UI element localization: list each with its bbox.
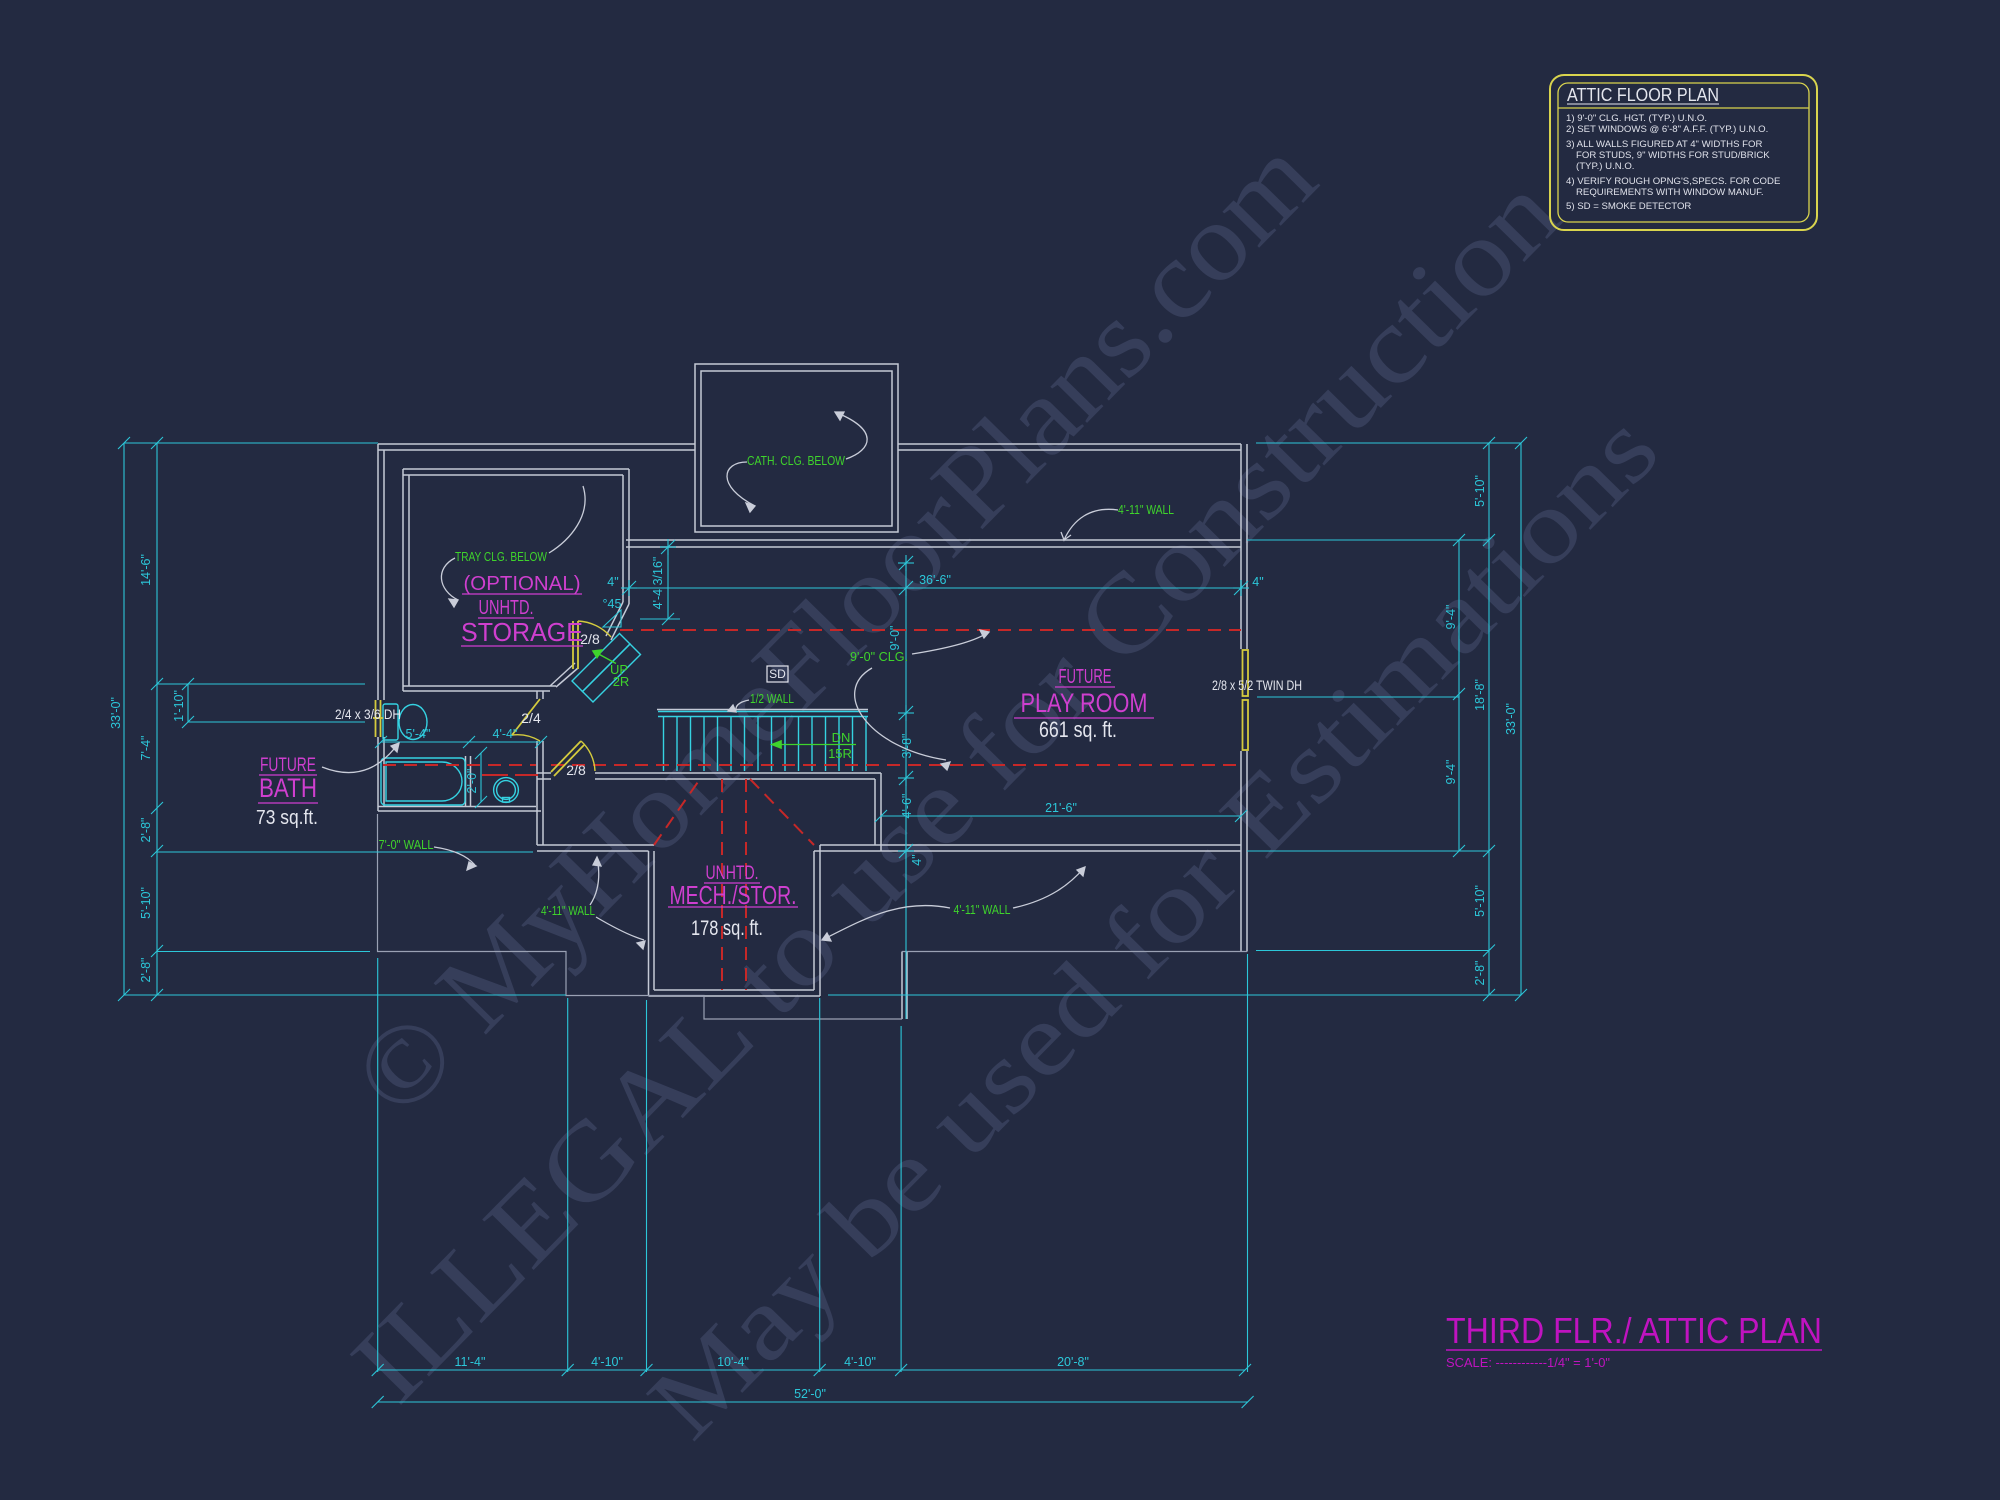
svg-text:20'-8": 20'-8" bbox=[1057, 1355, 1089, 1369]
svg-text:4'-4 3/16": 4'-4 3/16" bbox=[651, 557, 665, 610]
svg-text:21'-6": 21'-6" bbox=[1045, 801, 1077, 815]
svg-text:UNHTD.: UNHTD. bbox=[479, 597, 534, 619]
svg-text:5'-10": 5'-10" bbox=[1473, 885, 1487, 917]
svg-text:4'-4": 4'-4" bbox=[493, 727, 518, 741]
svg-text:5'-10": 5'-10" bbox=[1473, 475, 1487, 507]
svg-text:1/2 WALL: 1/2 WALL bbox=[750, 691, 794, 706]
svg-text:33'-0": 33'-0" bbox=[109, 697, 123, 729]
svg-text:REQUIREMENTS WITH WINDOW MANUF: REQUIREMENTS WITH WINDOW MANUF. bbox=[1576, 187, 1764, 198]
svg-text:4'-6": 4'-6" bbox=[900, 794, 914, 819]
svg-text:2'-8": 2'-8" bbox=[139, 818, 153, 843]
svg-text:33'-0": 33'-0" bbox=[1504, 703, 1518, 735]
svg-text:4'-10": 4'-10" bbox=[844, 1355, 876, 1369]
svg-text:TRAY CLG. BELOW: TRAY CLG. BELOW bbox=[455, 549, 548, 564]
svg-text:4'-11" WALL: 4'-11" WALL bbox=[1118, 502, 1174, 517]
svg-text:7'-4": 7'-4" bbox=[139, 736, 153, 761]
svg-text:CATH. CLG. BELOW: CATH. CLG. BELOW bbox=[747, 453, 846, 468]
svg-text:SCALE: ------------1/4" = 1'-0: SCALE: ------------1/4" = 1'-0" bbox=[1446, 1355, 1610, 1370]
svg-text:7'-0" WALL: 7'-0" WALL bbox=[379, 837, 434, 852]
svg-text:15R: 15R bbox=[828, 746, 852, 761]
svg-text:1) 9'-0" CLG. HGT. (TYP.) U.N: 1) 9'-0" CLG. HGT. (TYP.) U.N.O. bbox=[1566, 113, 1707, 124]
svg-text:°45: °45 bbox=[603, 597, 622, 611]
svg-text:52'-0": 52'-0" bbox=[794, 1387, 826, 1401]
svg-text:10'-4": 10'-4" bbox=[717, 1355, 749, 1369]
svg-text:BATH: BATH bbox=[259, 773, 317, 803]
svg-text:9'-4": 9'-4" bbox=[1444, 605, 1458, 630]
svg-text:2'-8": 2'-8" bbox=[139, 958, 153, 983]
svg-text:PLAY ROOM: PLAY ROOM bbox=[1021, 688, 1148, 718]
svg-text:2'-8": 2'-8" bbox=[1473, 961, 1487, 986]
svg-text:14'-6": 14'-6" bbox=[139, 554, 153, 586]
svg-text:73 sq.ft.: 73 sq.ft. bbox=[256, 807, 318, 829]
svg-text:4'-10": 4'-10" bbox=[591, 1355, 623, 1369]
svg-text:STORAGE: STORAGE bbox=[461, 617, 583, 647]
svg-text:MECH./STOR.: MECH./STOR. bbox=[670, 880, 797, 910]
svg-text:2/8: 2/8 bbox=[580, 631, 600, 647]
svg-text:36'-6": 36'-6" bbox=[919, 573, 951, 587]
svg-text:4": 4" bbox=[607, 575, 618, 589]
svg-text:DN: DN bbox=[832, 730, 851, 745]
svg-text:2'-0": 2'-0" bbox=[465, 769, 479, 794]
svg-text:THIRD FLR./ ATTIC PLAN: THIRD FLR./ ATTIC PLAN bbox=[1446, 1310, 1822, 1351]
svg-text:2R: 2R bbox=[613, 674, 630, 689]
svg-text:2/4 x 3/6 DH: 2/4 x 3/6 DH bbox=[335, 707, 401, 722]
svg-text:4'-11" WALL: 4'-11" WALL bbox=[954, 902, 1011, 917]
svg-text:18'-8": 18'-8" bbox=[1473, 679, 1487, 711]
svg-text:4) VERIFY ROUGH OPNG'S,SPECS.: 4) VERIFY ROUGH OPNG'S,SPECS. FOR CODE bbox=[1566, 176, 1780, 187]
svg-text:2) SET WINDOWS @ 6'-8" A.F.F.: 2) SET WINDOWS @ 6'-8" A.F.F. (TYP.) U.N… bbox=[1566, 124, 1768, 135]
svg-text:178 sq. ft.: 178 sq. ft. bbox=[691, 917, 763, 940]
svg-text:(TYP.) U.N.O.: (TYP.) U.N.O. bbox=[1576, 161, 1634, 172]
svg-text:SD: SD bbox=[769, 667, 786, 681]
svg-text:1'-10": 1'-10" bbox=[172, 690, 186, 722]
svg-text:ATTIC FLOOR PLAN: ATTIC FLOOR PLAN bbox=[1567, 85, 1719, 105]
svg-text:FUTURE: FUTURE bbox=[1059, 666, 1112, 688]
svg-text:2/4: 2/4 bbox=[521, 710, 541, 726]
svg-text:5) SD = SMOKE DETECTOR: 5) SD = SMOKE DETECTOR bbox=[1566, 201, 1691, 212]
svg-text:FOR STUDS, 9" WIDTHS FOR STUD/: FOR STUDS, 9" WIDTHS FOR STUD/BRICK bbox=[1576, 150, 1770, 161]
svg-text:11'-4": 11'-4" bbox=[455, 1355, 486, 1369]
svg-text:3'-8": 3'-8" bbox=[900, 734, 914, 759]
svg-text:2/8 x 5/2 TWIN DH: 2/8 x 5/2 TWIN DH bbox=[1212, 678, 1302, 693]
svg-text:(OPTIONAL): (OPTIONAL) bbox=[464, 573, 581, 595]
svg-text:4": 4" bbox=[1252, 575, 1263, 589]
svg-text:4'-11" WALL: 4'-11" WALL bbox=[541, 903, 595, 918]
svg-text:2/8: 2/8 bbox=[566, 762, 586, 778]
svg-text:5'-10": 5'-10" bbox=[139, 887, 153, 919]
svg-text:5'-4": 5'-4" bbox=[406, 727, 431, 741]
svg-text:9'-0": 9'-0" bbox=[888, 626, 902, 651]
svg-text:9'-4": 9'-4" bbox=[1444, 760, 1458, 785]
svg-text:661 sq. ft.: 661 sq. ft. bbox=[1039, 717, 1117, 742]
svg-text:3) ALL WALLS FIGURED AT 4" WID: 3) ALL WALLS FIGURED AT 4" WIDTHS FOR bbox=[1566, 139, 1762, 150]
svg-text:4": 4" bbox=[910, 854, 924, 865]
